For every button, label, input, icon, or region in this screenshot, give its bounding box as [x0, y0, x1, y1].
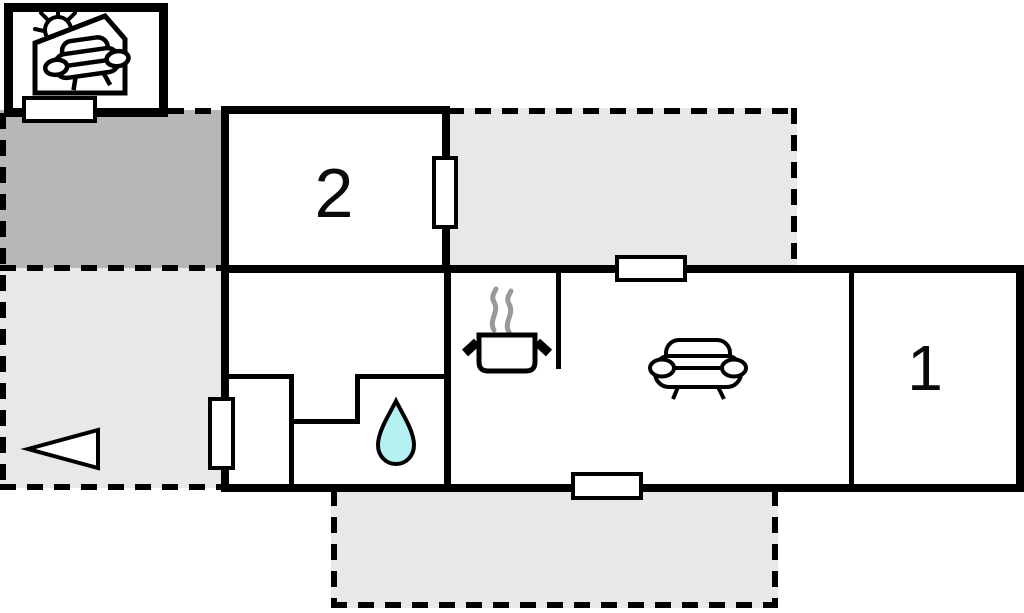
bathroom-notch-wall-v: [355, 374, 360, 424]
window: [615, 255, 687, 282]
terrace-bottom: [331, 490, 778, 608]
bathroom-top-wall: [355, 374, 445, 379]
room-1-divider-wall: [849, 273, 854, 484]
steam-icon: [492, 289, 511, 332]
carport-icon: [26, 6, 162, 102]
terrace-dashed-edge: [448, 108, 798, 114]
entrance-arrow-icon: [24, 426, 102, 472]
kitchen-divider-wall: [444, 273, 451, 484]
stove-icon: [458, 283, 553, 378]
window: [208, 397, 235, 470]
sofa-icon: [648, 337, 748, 401]
bathroom-notch-wall-h: [289, 419, 360, 424]
wc-top-wall: [229, 374, 293, 379]
terrace-dashed-edge: [772, 490, 778, 608]
terrace-dashed-edge: [331, 490, 337, 608]
room-2-label: 2: [304, 158, 364, 228]
terrace-dark: [0, 110, 222, 268]
floor-plan: 2 1: [0, 0, 1024, 613]
water-drop-icon: [374, 398, 418, 468]
terrace-dashed-edge: [331, 602, 778, 608]
room-1-label: 1: [895, 336, 955, 400]
kitchen-living-partial-wall: [556, 273, 561, 369]
terrace-top: [448, 108, 797, 270]
terrace-dashed-edge: [168, 108, 222, 114]
window: [571, 472, 643, 500]
terrace-dashed-edge: [0, 265, 222, 271]
window: [432, 156, 458, 229]
terrace-dashed-edge: [791, 108, 797, 270]
terrace-dashed-edge: [0, 484, 222, 490]
cooking-pot-icon: [465, 335, 549, 371]
terrace-dashed-edge: [0, 113, 6, 488]
wc-right-wall: [289, 374, 294, 484]
